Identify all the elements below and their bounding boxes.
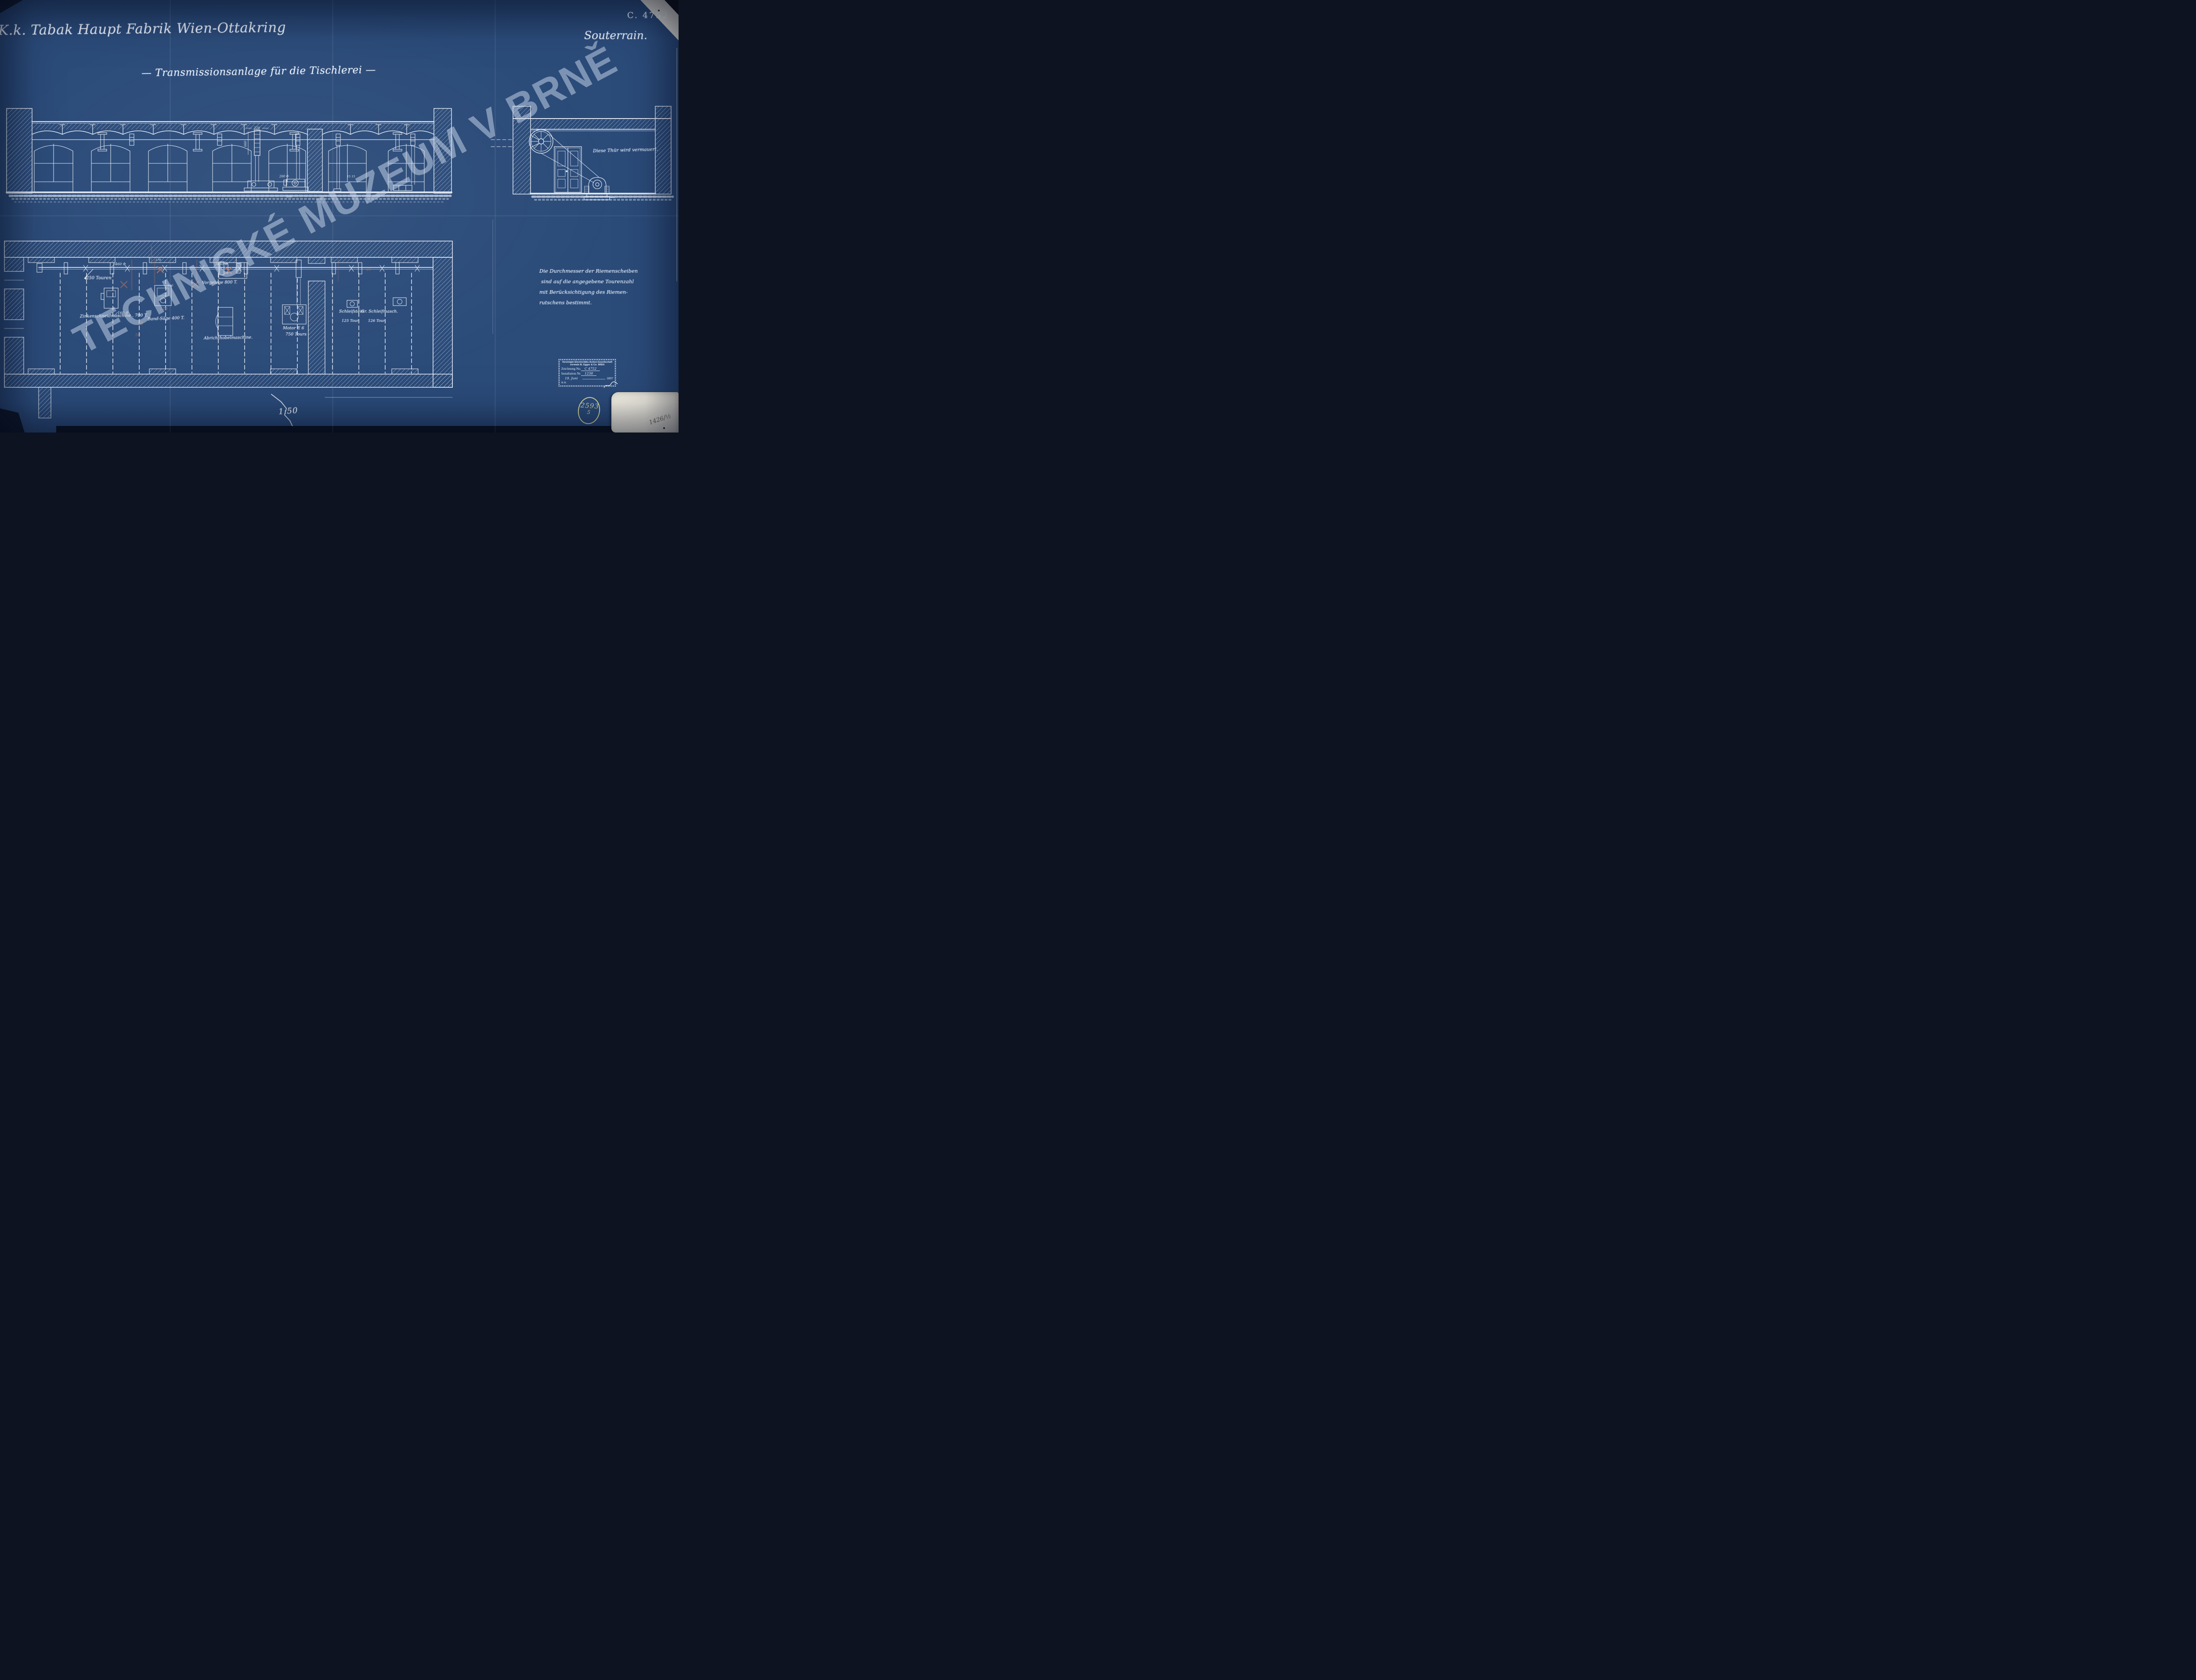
location-label: Souterrain. [584,29,647,42]
stamp-year: 1897 [607,377,613,380]
floor-bench [334,185,412,191]
pencil-number: 50 [138,322,143,326]
stamp-drawing-value: C 4752 [581,367,600,371]
plan-view: 460 Φ 440 Φ 170 160 Φ 110 [4,241,452,418]
shaft-stub-dashed [491,140,513,147]
blueprint-page: 220 660 200 Φ 300 15 15 [0,0,679,433]
window [34,144,73,191]
window [329,144,366,191]
plan-wall-bottom [4,369,452,418]
dim-label: 440 Φ [217,262,228,266]
plan-wall-right [433,257,452,387]
stamp-installation-label: Installation Nr. [561,372,581,375]
floor-machine-motor [283,179,308,191]
machine-label-gr-schleifmasch-speed: 126 Tour. [368,319,386,323]
line-shaft [32,128,434,189]
hanger-bracket [193,133,202,151]
wall-right [434,108,451,193]
wall-middle-pier [307,129,322,191]
window [148,144,187,191]
dim-label: 110 [167,284,173,288]
machine-label-schleifstein-speed: 125 Tour. [342,319,359,323]
stamp-company-line2: vormals B. Egger & Co. WIEN [561,364,613,366]
plan-wall-left [4,257,24,374]
shaft-speed-label: 250 Touren [86,276,112,281]
note-line: sind auf die angegebene Tourenzahl [541,278,634,285]
machine-schleifstein [347,300,358,307]
belts [256,145,415,189]
plan-wall-middle [308,257,325,374]
stamp-initials: R.H. [561,381,567,385]
dim-label: 660 [244,141,247,147]
note-line: mit Berücksichtigung des Riemen- [539,289,628,295]
pencil-numbers: 50 120 50 65 [135,268,371,338]
paper-patch: 1426/½ [611,392,679,433]
machine-bandsaege [155,285,171,306]
machine-label-vorgelege: Vorgelege 800 T. [202,280,238,285]
windows [34,144,424,191]
ground-texture [531,194,673,200]
dim-label: 220 [253,126,260,130]
flywheel [529,130,553,153]
machine-label-motor-speed: 750 Tours [285,332,307,337]
scale-label: 1:50 [278,406,298,416]
pencil-number: 120 [160,307,167,311]
wall-left [7,108,32,193]
drawing-title: K.k. Tabak Haupt Fabrik Wien-Ottakring [0,20,286,39]
window [91,144,130,191]
pencil-number: 65 [366,268,371,272]
ceiling-vaults [32,122,434,134]
dim-label: 170 [155,258,161,262]
note-line: Die Durchmesser der Riemenscheiben [539,268,638,274]
patch-speck [663,427,665,429]
plan-wall-top [4,241,452,263]
company-stamp: Vereinigte Electricitäts-Actien-Gesellsc… [559,359,616,386]
stamp-drawing-label: Zeichnung No. [561,367,581,371]
hanger-bracket [98,133,107,151]
stamp-date: 19. Juni [561,377,581,380]
machine-label-abrichthobel: Abrichthobelmaschine. [204,335,253,341]
drawing-number: C. 4752 [627,11,669,20]
window [213,144,251,191]
hanger-bracket [393,133,402,151]
wall-left [513,106,531,194]
dim-label: 15 15 [347,175,355,178]
machine-gr-schleifmasch [393,298,406,306]
machine-label-schleifstein: Schleifstein [339,309,364,314]
stamp-installation-value: 1238 [581,372,596,376]
archive-number: 2593 [579,401,600,411]
machine-label-motor: Motor E 6 [283,326,304,331]
pencil-number: 50 [135,333,141,338]
machine-label-gr-schleifmasch: Gr. Schleifmasch. [361,309,398,314]
pencil-inventory-number: 1426/½ [648,412,672,426]
note-line: rutschens bestimmt. [539,299,592,306]
dim-label: 460 Φ [115,262,126,266]
double-door [554,147,582,192]
dim-label: 300 [286,195,292,198]
machine-zinkenschneid [101,288,118,308]
section-elevation: 220 660 200 Φ 300 15 15 [7,108,451,202]
ground-texture [7,192,451,202]
hanger-bracket [290,133,299,151]
machine-motor [282,278,306,324]
dim-label: 200 Φ [279,175,289,178]
belt-to-dynamo [540,134,599,183]
window [269,144,306,191]
section-right-room [491,106,673,200]
floor-machine-lathe [244,181,278,191]
